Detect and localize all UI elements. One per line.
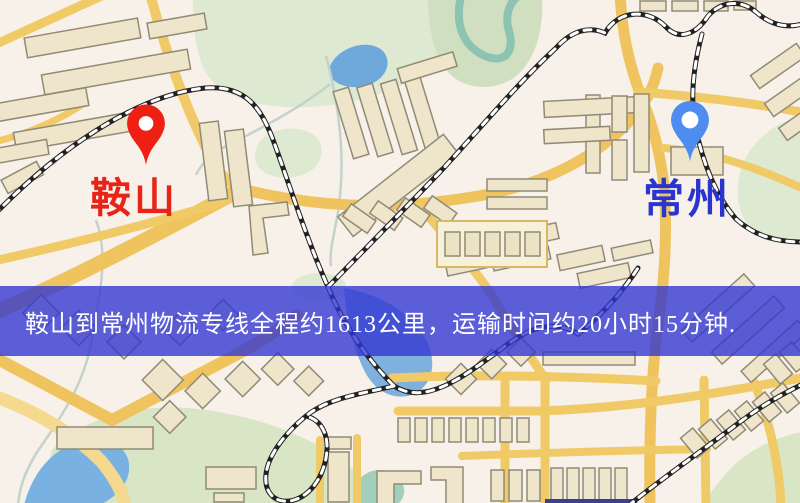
destination-pin[interactable] (667, 100, 713, 163)
map-canvas: 鞍山 常州 鞍山到常州物流专线全程约1613公里，运输时间约20小时15分钟. (0, 0, 800, 503)
destination-pin-hole (682, 112, 699, 129)
map-image (0, 0, 800, 503)
origin-pin[interactable] (125, 103, 167, 167)
route-info-text: 鞍山到常州物流专线全程约1613公里，运输时间约20小时15分钟. (25, 304, 736, 339)
destination-label: 常州 (643, 179, 731, 220)
origin-pin-body (127, 105, 165, 165)
map-marker-icon (125, 103, 167, 167)
destination-pin-body (671, 101, 709, 161)
origin-label: 鞍山 (90, 178, 178, 219)
route-info-banner: 鞍山到常州物流专线全程约1613公里，运输时间约20小时15分钟. (0, 286, 800, 356)
origin-pin-hole (139, 116, 154, 131)
map-marker-icon (667, 100, 713, 163)
